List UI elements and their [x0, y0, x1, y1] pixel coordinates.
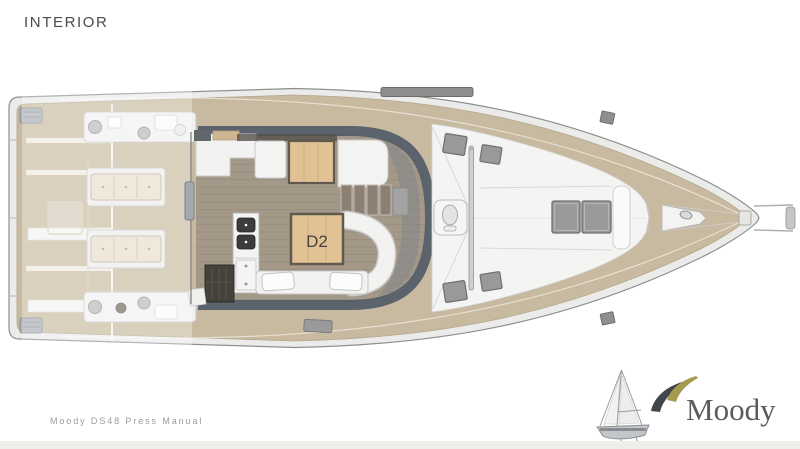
pillow [261, 272, 294, 291]
deck-hatch [443, 133, 468, 155]
deck-fitting [434, 200, 467, 235]
deck-rail-fitting [304, 319, 333, 332]
companionway-steps [341, 185, 408, 215]
galley-sink-unit [233, 213, 259, 293]
deck-hatch [480, 145, 502, 165]
saloon-table [289, 141, 334, 183]
page-bottom-strip [0, 441, 800, 449]
saloon-seat [255, 141, 286, 178]
sailboat-icon [597, 370, 649, 447]
brand-wordmark: Moody [686, 392, 776, 428]
bowsprit [754, 205, 795, 231]
berth-headboard [613, 186, 630, 249]
deck-hatch [443, 280, 468, 302]
saloon-door [185, 182, 194, 220]
forward-skylight [552, 201, 611, 233]
mast-rod [469, 146, 474, 291]
anchor-roller [739, 211, 751, 225]
mooring-cleat [600, 111, 615, 124]
cabin-d2-table: D2 [291, 214, 343, 264]
mooring-cleat [600, 312, 615, 325]
footer-caption: Moody DS48 Press Manual [50, 416, 203, 426]
saloon: D2 [185, 130, 430, 306]
press-manual-page: INTERIOR [0, 0, 800, 449]
galley-stove [205, 265, 234, 302]
saloon-seat [338, 140, 388, 187]
pillow [330, 272, 363, 291]
cockpit [22, 90, 196, 350]
deck-rail-fitting [381, 88, 473, 97]
deck-hatch [480, 272, 502, 292]
cabin-d2-label: D2 [306, 232, 328, 251]
